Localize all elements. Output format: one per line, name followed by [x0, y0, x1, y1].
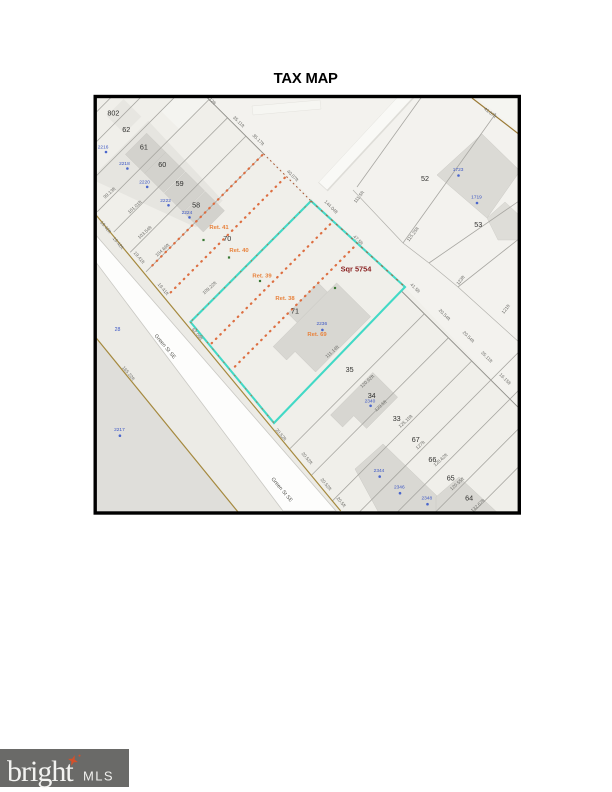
svg-text:Ret. 39: Ret. 39	[252, 273, 272, 279]
svg-text:53: 53	[474, 220, 482, 229]
svg-text:2236: 2236	[316, 321, 327, 327]
svg-text:2222: 2222	[160, 198, 171, 204]
svg-text:Sqr 5754: Sqr 5754	[341, 264, 373, 273]
svg-text:2340: 2340	[365, 398, 376, 404]
svg-text:67: 67	[412, 435, 420, 444]
svg-text:60: 60	[158, 160, 166, 169]
svg-text:2344: 2344	[374, 468, 385, 474]
svg-text:MLS: MLS	[83, 769, 114, 784]
svg-text:71: 71	[291, 307, 299, 316]
svg-text:Ret. 40: Ret. 40	[229, 248, 249, 254]
svg-text:Ret. 38: Ret. 38	[275, 296, 295, 302]
svg-text:64: 64	[465, 494, 473, 503]
svg-text:61: 61	[140, 143, 148, 152]
svg-text:bright: bright	[7, 755, 74, 788]
svg-text:1723: 1723	[453, 167, 464, 173]
svg-text:Ret. 69: Ret. 69	[307, 332, 327, 338]
svg-text:TAX MAP: TAX MAP	[274, 71, 338, 87]
svg-text:33: 33	[393, 414, 401, 423]
svg-text:2217: 2217	[114, 427, 125, 433]
svg-text:59: 59	[176, 179, 184, 188]
svg-text:58: 58	[192, 201, 200, 210]
svg-text:1719: 1719	[471, 195, 482, 201]
svg-text:802: 802	[107, 109, 119, 118]
svg-text:2348: 2348	[421, 496, 432, 502]
svg-text:2216: 2216	[98, 145, 109, 151]
svg-text:2346: 2346	[394, 485, 405, 491]
svg-text:52: 52	[421, 174, 429, 183]
svg-text:2220: 2220	[139, 179, 150, 185]
svg-text:65: 65	[447, 474, 455, 483]
svg-text:35: 35	[346, 365, 354, 374]
svg-text:Ret. 41: Ret. 41	[209, 225, 229, 231]
svg-text:2218: 2218	[119, 161, 130, 167]
svg-text:66: 66	[428, 455, 436, 464]
svg-text:2224: 2224	[182, 210, 193, 216]
svg-text:62: 62	[122, 125, 130, 134]
svg-text:70: 70	[223, 234, 231, 243]
svg-text:28: 28	[115, 327, 121, 333]
